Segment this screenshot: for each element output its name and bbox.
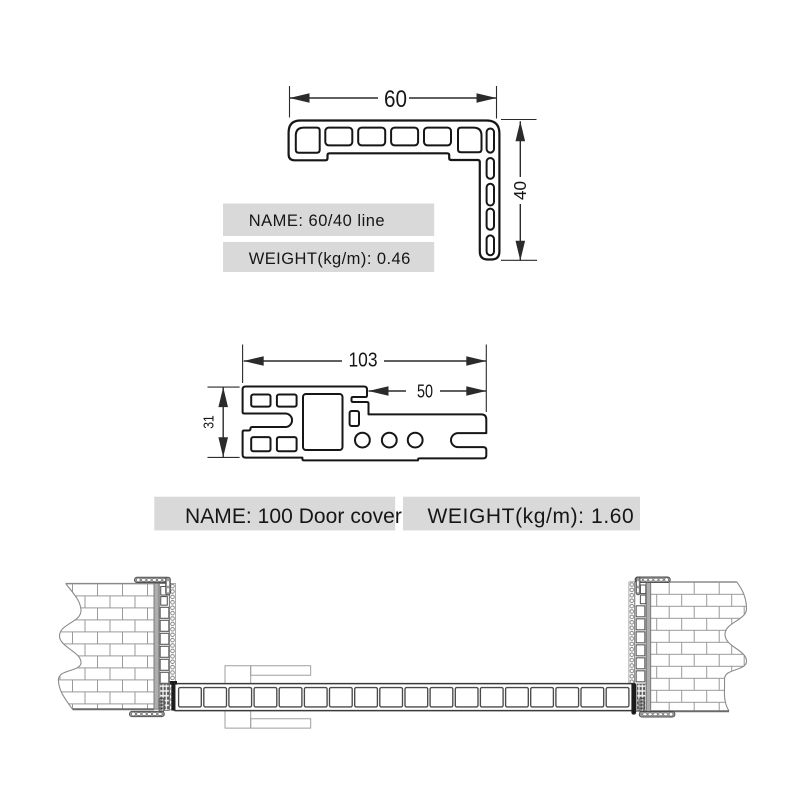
svg-text:31: 31 (202, 415, 218, 429)
svg-text:40: 40 (510, 181, 530, 200)
svg-text:NAME: 60/40 line: NAME: 60/40 line (249, 212, 385, 230)
svg-text:50: 50 (417, 382, 433, 402)
svg-text:NAME: 100 Door cover: NAME: 100 Door cover (185, 505, 402, 528)
svg-text:60: 60 (384, 86, 407, 113)
svg-text:WEIGHT(kg/m): 1.60: WEIGHT(kg/m): 1.60 (428, 505, 635, 528)
svg-text:WEIGHT(kg/m): 0.46: WEIGHT(kg/m): 0.46 (249, 250, 411, 268)
svg-text:103: 103 (349, 350, 378, 372)
